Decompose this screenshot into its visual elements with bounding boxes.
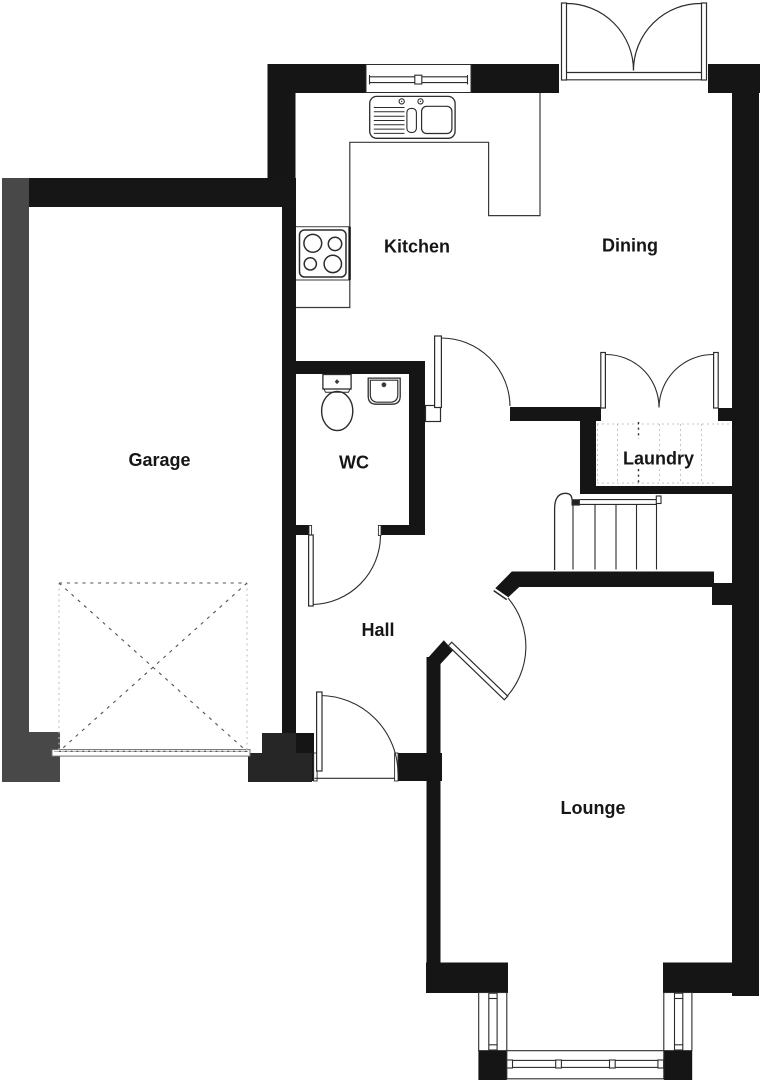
svg-text:Dining: Dining xyxy=(602,236,658,256)
svg-text:Laundry: Laundry xyxy=(623,449,694,469)
svg-text:Lounge: Lounge xyxy=(561,798,626,818)
svg-text:WC: WC xyxy=(339,453,369,473)
svg-text:Kitchen: Kitchen xyxy=(384,237,450,257)
svg-text:Hall: Hall xyxy=(361,620,394,640)
svg-text:Garage: Garage xyxy=(128,450,190,470)
